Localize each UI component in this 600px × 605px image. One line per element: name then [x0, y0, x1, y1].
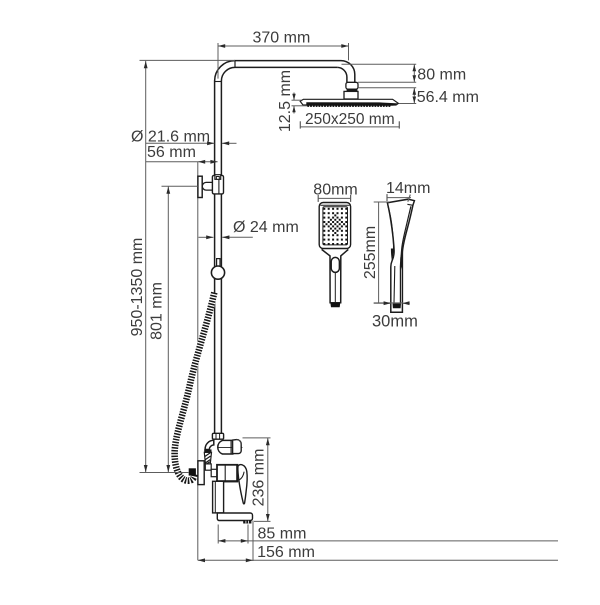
svg-text:30mm: 30mm	[372, 312, 418, 330]
svg-text:156 mm: 156 mm	[257, 544, 315, 561]
svg-text:56.4 mm: 56.4 mm	[417, 89, 479, 106]
svg-text:370 mm: 370 mm	[253, 30, 311, 47]
svg-text:801 mm: 801 mm	[148, 282, 165, 340]
svg-text:255mm: 255mm	[362, 226, 379, 279]
svg-text:80mm: 80mm	[313, 181, 357, 198]
svg-text:236 mm: 236 mm	[250, 449, 267, 507]
svg-text:56 mm: 56 mm	[147, 144, 196, 161]
svg-text:Ø 24 mm: Ø 24 mm	[233, 219, 299, 236]
svg-text:85 mm: 85 mm	[258, 525, 307, 542]
svg-text:14mm: 14mm	[386, 180, 430, 197]
svg-text:950-1350 mm: 950-1350 mm	[129, 238, 146, 337]
svg-text:250x250 mm: 250x250 mm	[305, 111, 395, 128]
svg-text:80 mm: 80 mm	[417, 67, 466, 84]
svg-text:12.5 mm: 12.5 mm	[277, 70, 294, 132]
